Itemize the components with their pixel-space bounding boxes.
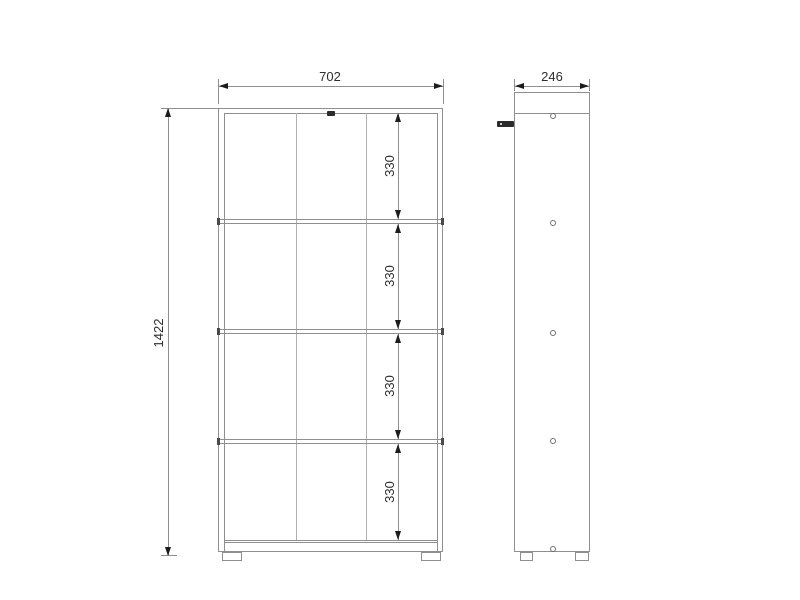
cam-fitting-icon [217, 328, 220, 335]
cam-fitting-icon [441, 438, 444, 445]
dim-depth-ext-right [589, 79, 590, 91]
dim-section2-arrow-bottom [395, 320, 401, 329]
cam-fitting-icon [441, 328, 444, 335]
dim-section4-line [398, 444, 399, 540]
shelf-pin-hole-icon [550, 546, 556, 552]
dim-width-label: 702 [308, 70, 352, 84]
shelf-board-2 [218, 329, 443, 334]
dim-section3-arrow-top [395, 334, 401, 343]
dim-height-label: 1422 [152, 311, 166, 355]
front-left-foot [222, 552, 242, 561]
dim-section3-arrow-bottom [395, 430, 401, 439]
shelf-pin-hole-icon [550, 113, 556, 119]
dim-section1-label: 330 [383, 149, 397, 183]
shelf-pin-hole-icon [550, 330, 556, 336]
shelf-board-1 [218, 219, 443, 224]
side-left-foot [520, 552, 533, 561]
dim-width-ext-right [443, 79, 444, 104]
cam-fitting-icon [441, 218, 444, 225]
dim-section2-label: 330 [383, 259, 397, 293]
dim-section1-arrow-top [395, 113, 401, 122]
dim-section4-label: 330 [383, 475, 397, 509]
dim-section3-label: 330 [383, 369, 397, 403]
side-view-outline [514, 92, 590, 552]
cam-fitting-icon [217, 438, 220, 445]
front-right-foot [421, 552, 441, 561]
dim-section3-line [398, 334, 399, 439]
dim-section4-arrow-top [395, 444, 401, 453]
shelf-pin-hole-icon [550, 220, 556, 226]
shelf-board-3 [218, 439, 443, 444]
wall-bracket-screw-icon [500, 123, 502, 125]
dim-depth-label: 246 [532, 70, 572, 84]
front-divider-line-2 [366, 113, 367, 540]
front-divider-line-1 [296, 113, 297, 540]
dim-section2-line [398, 224, 399, 329]
side-right-foot [575, 552, 589, 561]
dim-width-arrow-right [434, 83, 443, 89]
dim-section1-arrow-bottom [395, 210, 401, 219]
dim-section1-line [398, 113, 399, 219]
dim-depth-arrow-left [515, 83, 524, 89]
dim-height-arrow-top [165, 108, 171, 117]
dim-width-line [218, 86, 444, 87]
cam-fitting-icon [217, 218, 220, 225]
dim-depth-arrow-right [580, 83, 589, 89]
dim-depth-line [514, 86, 590, 87]
dim-width-arrow-left [219, 83, 228, 89]
dim-height-line [168, 108, 169, 556]
technical-drawing-shelf-unit: 702 246 1422 330 330 330 330 [0, 0, 800, 600]
dim-height-arrow-bottom [165, 547, 171, 556]
dim-section4-arrow-bottom [395, 531, 401, 540]
dim-section2-arrow-top [395, 224, 401, 233]
bottom-panel [224, 540, 437, 543]
shelf-pin-hole-icon [550, 438, 556, 444]
top-fitting-icon [327, 111, 335, 116]
